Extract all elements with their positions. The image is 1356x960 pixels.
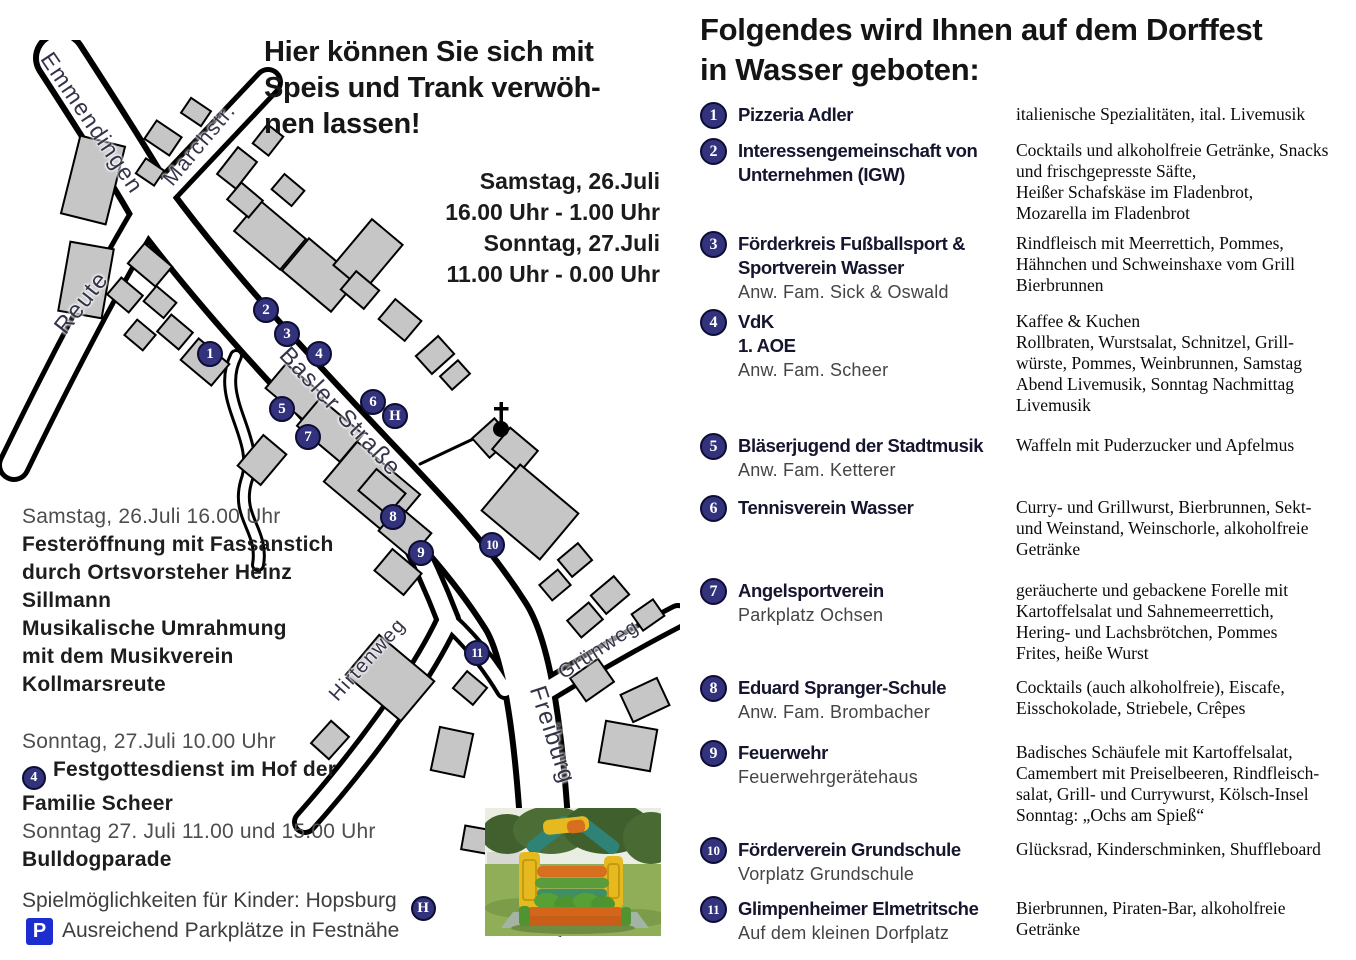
map-marker-h: H [382, 403, 408, 429]
offer-item: 10Förderverein GrundschuleVorplatz Grund… [700, 838, 1350, 886]
saturday-event-opening: Festeröffnung mit Fassanstich durch Orts… [22, 531, 334, 615]
item-badge: 7 [700, 578, 727, 605]
item-name: VdK 1. AOE [738, 310, 1016, 358]
item-offerings: geräucherte und gebackene Forelle mit Ka… [1016, 579, 1350, 664]
sunday-event-service-text: Festgottesdienst im Hof der [53, 758, 336, 781]
item-offerings: Kaffee & Kuchen Rollbraten, Wurstsalat, … [1016, 310, 1350, 416]
item-offerings: Glücksrad, Kinderschminken, Shuffleboard [1016, 838, 1350, 860]
item-name: Angelsportverein [738, 579, 1016, 603]
kids-info-text: Spielmöglichkeiten für Kinder: Hopsburg [22, 889, 397, 912]
item-offerings: Curry- und Grillwurst, Bierbrunnen, Sekt… [1016, 496, 1350, 560]
offer-item: 4VdK 1. AOEAnw. Fam. ScheerKaffee & Kuch… [700, 310, 1350, 416]
item-location: Vorplatz Grundschule [738, 862, 1016, 886]
marker-4-badge: 4 [22, 766, 46, 790]
item-badge: 2 [700, 138, 727, 165]
left-headline: Hier können Sie sich mit Speis und Trank… [264, 34, 600, 142]
item-offerings: Badisches Schäufele mit Kartoffelsalat, … [1016, 741, 1350, 826]
item-offerings: Waffeln mit Puderzucker und Apfelmus [1016, 434, 1350, 456]
map-marker-3: 3 [274, 321, 300, 347]
item-name: Interessengemeinschaft von Unternehmen (… [738, 139, 1016, 187]
item-location: Anw. Fam. Sick & Oswald [738, 280, 1016, 304]
map-marker-7: 7 [295, 424, 321, 450]
item-badge: 5 [700, 433, 727, 460]
flyer-page: EmmendingenMarchstr.ReuteBasler StraßeHi… [0, 0, 1356, 960]
item-offerings: Cocktails und alkoholfreie Getränke, Sna… [1016, 139, 1350, 224]
offer-item: 2Interessengemeinschaft von Unternehmen … [700, 139, 1350, 224]
item-badge: 10 [700, 837, 727, 864]
item-offerings: Cocktails (auch alkoholfreie), Eiscafe, … [1016, 676, 1350, 719]
item-badge: 8 [700, 675, 727, 702]
offer-item: 3Förderkreis Fußballsport & Sportverein … [700, 232, 1350, 304]
item-location: Parkplatz Ochsen [738, 603, 1016, 627]
offer-item: 1Pizzeria Adleritalienische Spezialitäte… [700, 103, 1350, 129]
map-marker-9: 9 [408, 540, 434, 566]
item-name: Pizzeria Adler [738, 103, 1016, 127]
item-badge: 4 [700, 309, 727, 336]
item-badge: 11 [700, 896, 727, 923]
offer-item: 7AngelsportvereinParkplatz Ochsengeräuch… [700, 579, 1350, 664]
hopsburg-photo [485, 808, 661, 936]
item-name: Glimpenheimer Elmetritsche [738, 897, 1016, 921]
offer-item: 9FeuerwehrFeuerwehrgerätehausBadisches S… [700, 741, 1350, 826]
item-offerings: Rindfleisch mit Meerrettich, Pommes, Häh… [1016, 232, 1350, 296]
sunday-program: Sonntag, 27.Juli 10.00 Uhr 4Festgottesdi… [22, 728, 376, 874]
map-marker-4: 4 [306, 341, 332, 367]
sunday-event-service: 4Festgottesdienst im Hof der [22, 756, 376, 790]
map-marker-2: 2 [253, 297, 279, 323]
marker-h-badge: H [411, 896, 436, 921]
item-badge: 3 [700, 231, 727, 258]
item-name: Bläserjugend der Stadtmusik [738, 434, 1016, 458]
item-location: Feuerwehrgerätehaus [738, 765, 1016, 789]
item-name: Eduard Spranger-Schule [738, 676, 1016, 700]
festival-schedule: Samstag, 26.Juli 16.00 Uhr - 1.00 Uhr So… [360, 166, 660, 290]
item-location: Anw. Fam. Scheer [738, 358, 1016, 382]
saturday-time: Samstag, 26.Juli 16.00 Uhr [22, 503, 334, 531]
item-badge: 1 [700, 102, 727, 129]
item-location: Auf dem kleinen Dorfplatz [738, 921, 1016, 945]
item-offerings: italienische Spezialitäten, ital. Livemu… [1016, 103, 1350, 125]
item-name: Förderverein Grundschule [738, 838, 1016, 862]
sunday-event-service-line2: Familie Scheer [22, 790, 376, 818]
saturday-event-music: Musikalische Umrahmung mit dem Musikvere… [22, 615, 334, 699]
offer-item: 6Tennisverein WasserCurry- und Grillwurs… [700, 496, 1350, 560]
item-location: Anw. Fam. Brombacher [738, 700, 1016, 724]
parking-icon: P [26, 918, 53, 945]
item-offerings: Bierbrunnen, Piraten-Bar, alkoholfreie G… [1016, 897, 1350, 940]
item-name: Tennisverein Wasser [738, 496, 1016, 520]
parking-info-line: P Ausreichend Parkplätze in Festnähe [26, 916, 399, 946]
item-name: Förderkreis Fußballsport & Sportverein W… [738, 232, 1016, 280]
item-location: Anw. Fam. Ketterer [738, 458, 1016, 482]
item-name: Feuerwehr [738, 741, 1016, 765]
map-marker-1: 1 [197, 341, 223, 367]
map-marker-11: 11 [464, 640, 490, 666]
offer-item: 8Eduard Spranger-SchuleAnw. Fam. Brombac… [700, 676, 1350, 724]
offers-panel: Folgendes wird Ihnen auf dem Dorffest in… [700, 10, 1350, 945]
parking-info-text: Ausreichend Parkplätze in Festnähe [62, 916, 399, 946]
offer-list: 1Pizzeria Adleritalienische Spezialitäte… [700, 103, 1350, 945]
sunday-time2: Sonntag 27. Juli 11.00 und 15.00 Uhr [22, 818, 376, 846]
sunday-event-parade: Bulldogparade [22, 846, 376, 874]
offers-heading: Folgendes wird Ihnen auf dem Dorffest in… [700, 10, 1350, 90]
offer-item: 5Bläserjugend der StadtmusikAnw. Fam. Ke… [700, 434, 1350, 482]
map-marker-5: 5 [269, 396, 295, 422]
map-marker-8: 8 [380, 504, 406, 530]
item-badge: 9 [700, 740, 727, 767]
offer-item: 11Glimpenheimer ElmetritscheAuf dem klei… [700, 897, 1350, 945]
sunday-time: Sonntag, 27.Juli 10.00 Uhr [22, 728, 376, 756]
item-badge: 6 [700, 495, 727, 522]
map-marker-10: 10 [479, 532, 505, 558]
saturday-program: Samstag, 26.Juli 16.00 Uhr Festeröffnung… [22, 503, 334, 699]
